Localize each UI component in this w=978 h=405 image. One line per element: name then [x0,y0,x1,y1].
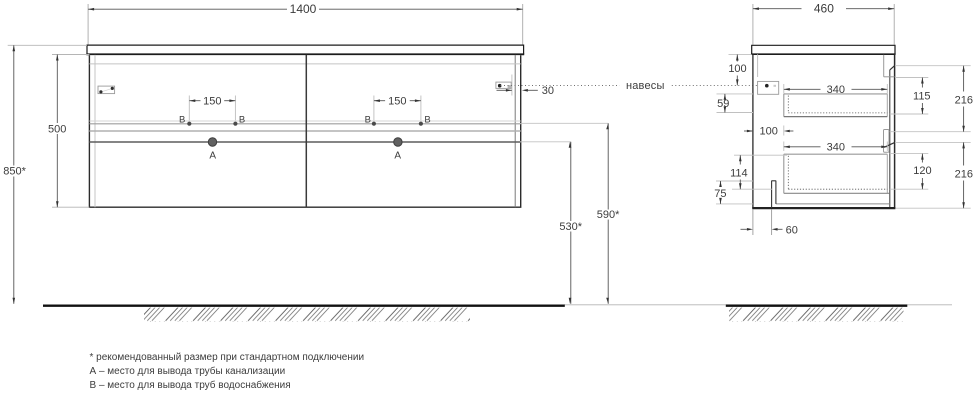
svg-text:100: 100 [728,63,746,75]
svg-text:460: 460 [814,2,834,16]
svg-text:A: A [209,151,216,162]
svg-text:120: 120 [913,165,931,177]
svg-text:500: 500 [48,124,66,136]
svg-text:216: 216 [955,95,973,107]
svg-text:340: 340 [827,142,845,154]
svg-text:А – место для вывода трубы кан: А – место для вывода трубы канализации [90,365,286,377]
svg-text:A: A [394,151,401,162]
svg-text:30: 30 [542,85,554,97]
svg-text:B: B [424,115,430,126]
svg-text:75: 75 [714,188,726,200]
svg-text:115: 115 [913,90,931,102]
svg-text:150: 150 [203,96,221,108]
svg-text:1400: 1400 [290,2,317,16]
svg-text:B – место для вывода труб водо: B – место для вывода труб водоснабжения [90,379,291,391]
svg-text:850*: 850* [3,166,26,178]
svg-text:150: 150 [388,96,406,108]
svg-text:* рекомендованный размер при с: * рекомендованный размер при стандартном… [90,352,365,363]
svg-text:590*: 590* [597,209,620,221]
svg-text:B: B [179,115,185,126]
svg-text:B: B [365,115,371,126]
svg-text:114: 114 [730,167,748,179]
svg-text:216: 216 [955,169,973,181]
svg-text:530*: 530* [559,221,582,233]
svg-text:59: 59 [717,98,729,110]
svg-text:навесы: навесы [626,80,665,92]
svg-text:60: 60 [786,224,798,236]
svg-text:100: 100 [760,126,778,138]
svg-text:B: B [239,115,245,126]
